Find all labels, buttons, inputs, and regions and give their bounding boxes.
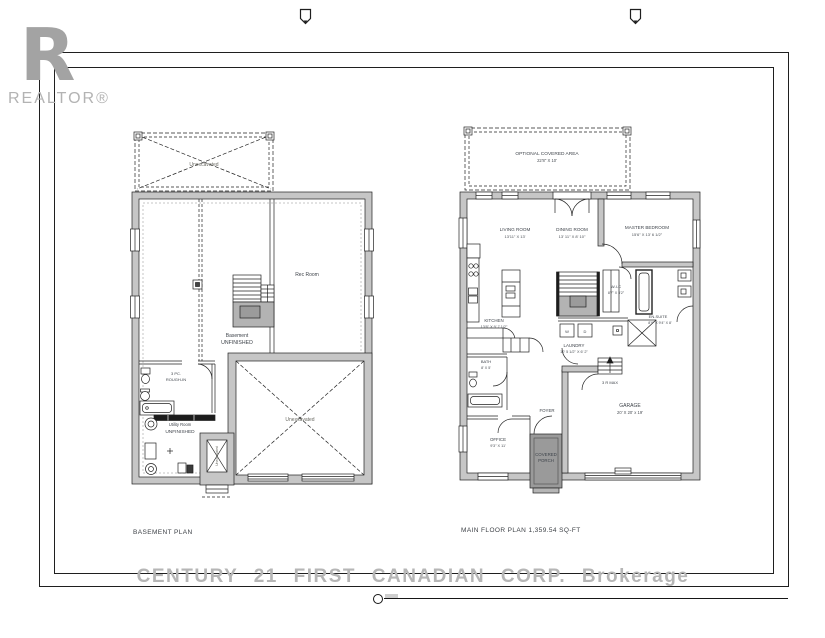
- label-rec-room: Rec Room: [295, 272, 319, 278]
- label-kitchen: KITCHEN: [484, 318, 503, 323]
- label-unexcavated-cellar: Unexcavated: [215, 446, 219, 466]
- label-foyer: FOYER: [539, 408, 554, 413]
- label-master-bedroom: MASTER BEDROOM: [625, 225, 669, 230]
- label-unexcavated-main: Unexcavated: [285, 417, 314, 423]
- label-porch-2: PORCH: [538, 458, 554, 463]
- label-garage-dims: 20' X 20' x 19': [617, 410, 643, 415]
- label-ensuite-dims: 8'9" X 9'4" X 8': [648, 321, 672, 325]
- label-laundry-dims: 10' 5 1/2" X 6' 2": [560, 350, 588, 354]
- label-dryer: D: [584, 329, 587, 334]
- label-wic-dims: 8'7" X 5'2": [608, 291, 625, 295]
- label-optional-area-dims: 22'8" X 10': [537, 158, 557, 163]
- label-office: OFFICE: [490, 437, 506, 442]
- main-stairs: [557, 272, 600, 316]
- footer-line: [384, 598, 788, 599]
- label-ensuite: EN-SUITE: [649, 314, 668, 319]
- label-master-bedroom-dims: 15'6" X 13' 6 1/2": [632, 232, 663, 237]
- basement-plan-drawing: Unexcavated Rec Room Basement UNFINISHED…: [120, 125, 380, 510]
- label-dining-room-dims: 13' 11" X 8' 10": [559, 234, 586, 239]
- label-basement-2: UNFINISHED: [221, 340, 253, 346]
- floorplan-sheet: R REALTOR®: [0, 0, 825, 638]
- label-utility-1: Utility Room: [169, 422, 192, 427]
- pin-icon: [299, 8, 312, 26]
- label-garage: GARAGE: [619, 403, 641, 409]
- label-kitchen-dims: 13'6" X 9' 7 1/2": [481, 325, 508, 329]
- label-dining-room: DINING ROOM: [556, 227, 588, 232]
- label-basement-1: Basement: [226, 333, 249, 339]
- label-optional-area: OPTIONAL COVERED AREA: [515, 151, 579, 157]
- brokerage-watermark: CENTURY 21 FIRST CANADIAN CORP. Brokerag…: [39, 566, 787, 588]
- basement-plan-caption: BASEMENT PLAN: [133, 529, 193, 536]
- label-wic: W-I-C: [611, 284, 621, 289]
- label-office-dims: 9'3" X 11': [490, 444, 506, 448]
- realtor-logo-label: REALTOR®: [8, 90, 118, 108]
- label-utility-2: UNFINISHED: [165, 429, 195, 435]
- label-washer: W: [565, 329, 569, 334]
- main-floor-plan-caption: MAIN FLOOR PLAN 1,359.54 SQ-FT: [461, 527, 581, 534]
- realtor-logo: R REALTOR®: [8, 22, 118, 112]
- label-deck-unexcavated: Unexcavated: [189, 162, 218, 168]
- label-living-room-dims: 13'11" X 13': [505, 234, 526, 239]
- label-garage-stairs: 3 R MAX: [602, 380, 618, 385]
- label-bath-dims: 8' X 5': [481, 366, 491, 370]
- footer-seal-icon: [373, 594, 383, 604]
- label-laundry: LAUNDRY: [564, 343, 585, 348]
- label-living-room: LIVING ROOM: [500, 227, 531, 232]
- label-porch-1: COVERED: [535, 452, 557, 457]
- label-rough-in-1: 3 PC.: [171, 371, 181, 376]
- footer-fine-print: [385, 594, 398, 598]
- pin-icon: [629, 8, 642, 26]
- main-floor-plan-drawing: OPTIONAL COVERED AREA 22'8" X 10' LIVING…: [450, 120, 710, 510]
- label-rough-in-2: ROUGH-IN: [166, 377, 186, 382]
- realtor-logo-mark: R: [8, 22, 118, 88]
- label-bath: BATH: [481, 359, 491, 364]
